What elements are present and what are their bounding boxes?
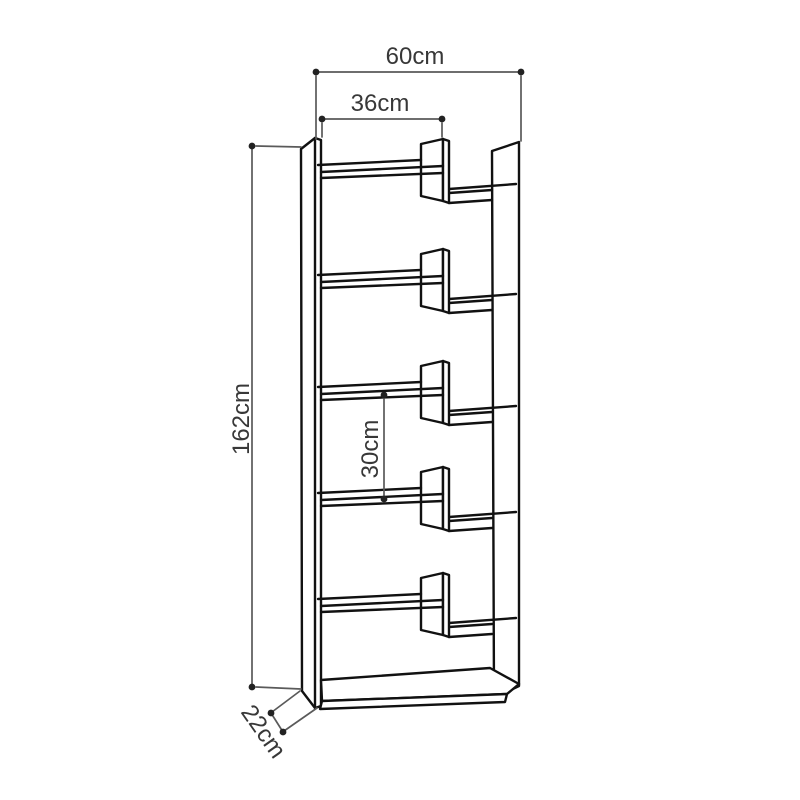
dimension-endpoint-dot [518,69,525,76]
middle-divider-4 [421,467,449,531]
shelf-level-4 [318,467,516,531]
middle-divider-5 [421,573,449,637]
right-side-panel [492,142,519,698]
dimension-drawing-page: 60cm 36cm 162cm 30cm 22cm [0,0,800,800]
middle-divider-2 [421,249,449,313]
shelf-gap-dimension: 30cm [357,392,387,503]
inner-width-dimension: 36cm [319,90,446,137]
inner-width-label: 36cm [351,90,410,117]
shelf-level-3 [318,361,516,425]
dimension-endpoint-dot [381,496,388,503]
shelf-level-2 [318,249,516,313]
bookcase-diagram: 60cm 36cm 162cm 30cm 22cm [0,0,800,800]
dimension-endpoint-dot [249,684,256,691]
shelf-level-1 [318,139,516,203]
total-width-dimension: 60cm [313,43,525,141]
left-side-panel [301,138,321,708]
total-height-label: 162cm [228,383,255,455]
middle-divider-1 [421,139,449,203]
shelf-gap-label: 30cm [357,420,384,479]
middle-divider-3 [421,361,449,425]
base-shelf [320,668,519,709]
dimension-endpoint-dot [439,116,446,123]
dimension-endpoint-dot [381,392,388,399]
total-height-dimension: 162cm [228,143,301,691]
total-width-label: 60cm [386,43,445,70]
depth-dimension: 22cm [235,691,317,763]
dimension-endpoint-dot [319,116,326,123]
bookcase-structure [301,138,519,709]
shelf-level-5 [318,573,516,637]
dimension-endpoint-dot [249,143,256,150]
dimension-endpoint-dot [313,69,320,76]
